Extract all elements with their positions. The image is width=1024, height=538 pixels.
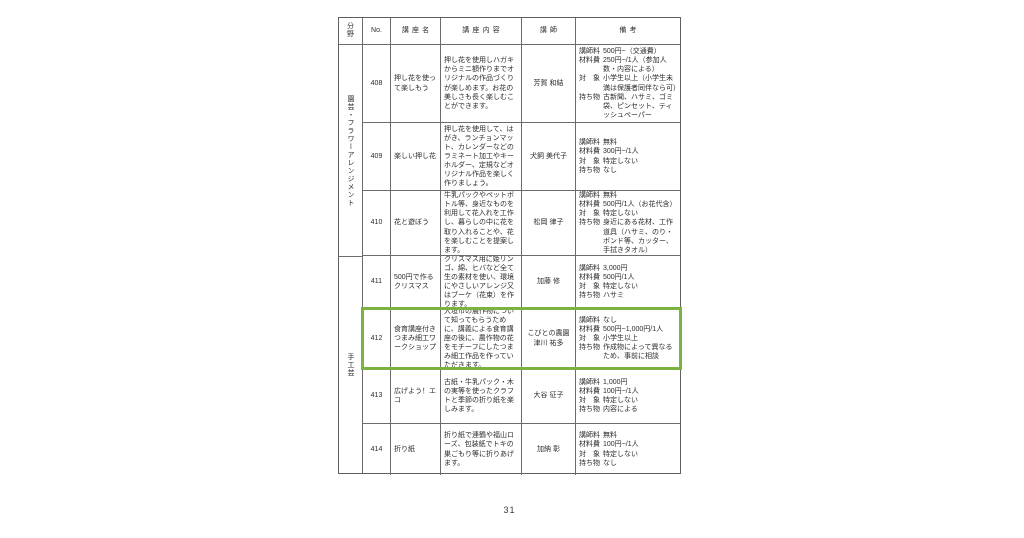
remark-value: 特定しない bbox=[603, 282, 677, 291]
remark-value: 特定しない bbox=[603, 396, 677, 405]
header-no: No. bbox=[363, 18, 391, 44]
remark-label: 持ち物 bbox=[579, 166, 603, 175]
remark-value: 特定しない bbox=[603, 209, 677, 218]
remark-value: 特定しない bbox=[603, 450, 677, 459]
remark-label: 材料費 bbox=[579, 56, 603, 74]
header-course-content: 講座内容 bbox=[441, 18, 522, 44]
remark-value: 特定しない bbox=[603, 157, 677, 166]
remark-label: 持ち物 bbox=[579, 405, 603, 414]
remark-label: 講師料 bbox=[579, 47, 603, 56]
course-no: 408 bbox=[363, 45, 391, 122]
field-group-gardening: 園芸・フラワーアレンジメント bbox=[339, 45, 362, 256]
remark-label: 対 象 bbox=[579, 74, 603, 92]
table-row-411: 411 500円で作るクリスマス クリスマス用に姫リンゴ、綿、ヒバなど全て生の素… bbox=[363, 256, 680, 309]
course-instructor: こびとの農園 津川 祐多 bbox=[522, 309, 576, 368]
course-content: 古紙・牛乳パック・木の実等を使ったクラフトと季節の折り紙を楽しみます。 bbox=[441, 369, 522, 423]
remark-label: 持ち物 bbox=[579, 459, 603, 468]
course-remarks: 講師料3,000円 材料費500円/1人 対 象特定しない 持ち物ハサミ bbox=[576, 256, 680, 308]
field-group-label: 園芸・フラワーアレンジメント bbox=[346, 95, 355, 207]
course-instructor: 犬飼 美代子 bbox=[522, 123, 576, 190]
remark-value: 500円/1人（お花代含） bbox=[603, 200, 677, 209]
remark-label: 材料費 bbox=[579, 387, 603, 396]
field-group-label: 手工芸 bbox=[346, 353, 355, 377]
remark-label: 講師料 bbox=[579, 316, 603, 325]
header-remarks: 備考 bbox=[576, 18, 680, 44]
course-no: 411 bbox=[363, 256, 391, 308]
remark-value: 無料 bbox=[603, 431, 677, 440]
course-no: 414 bbox=[363, 424, 391, 475]
field-column: 分野 園芸・フラワーアレンジメント 手工芸 bbox=[339, 18, 363, 473]
course-table: 分野 園芸・フラワーアレンジメント 手工芸 No. 講座名 講座内容 講師 備考… bbox=[338, 17, 681, 474]
remark-label: 材料費 bbox=[579, 325, 603, 334]
remark-value: なし bbox=[603, 459, 677, 468]
remark-label: 対 象 bbox=[579, 282, 603, 291]
course-no: 413 bbox=[363, 369, 391, 423]
course-name: 花と遊ぼう bbox=[391, 191, 441, 255]
course-instructor: 加藤 修 bbox=[522, 256, 576, 308]
table-row-414: 414 折り紙 折り紙で連鶴や福山ローズ、包装紙でトキの巣ごもり等に折りあげます… bbox=[363, 424, 680, 475]
course-name: 折り紙 bbox=[391, 424, 441, 475]
course-name: 食育講座付きつまみ細工ワークショップ bbox=[391, 309, 441, 368]
course-no: 410 bbox=[363, 191, 391, 255]
document-page: 分野 園芸・フラワーアレンジメント 手工芸 No. 講座名 講座内容 講師 備考… bbox=[0, 0, 1024, 538]
remark-label: 講師料 bbox=[579, 431, 603, 440]
remark-label: 講師料 bbox=[579, 191, 603, 200]
course-instructor: 大谷 征子 bbox=[522, 369, 576, 423]
remark-label: 持ち物 bbox=[579, 343, 603, 361]
remark-label: 講師料 bbox=[579, 378, 603, 387]
table-header-row: No. 講座名 講座内容 講師 備考 bbox=[363, 18, 680, 45]
remark-label: 対 象 bbox=[579, 334, 603, 343]
remark-label: 講師料 bbox=[579, 264, 603, 273]
table-row-409: 409 楽しい押し花 押し花を使用して、はがき、ランチョンマット、カレンダーなど… bbox=[363, 123, 680, 191]
course-content: 大垣市の農作物について知ってもらうために、講義による食育講座の後に、農作物の花を… bbox=[441, 309, 522, 368]
field-header-label: 分野 bbox=[347, 23, 354, 39]
header-course-name: 講座名 bbox=[391, 18, 441, 44]
remark-value: ハサミ bbox=[603, 291, 677, 300]
table-row-413: 413 広げよう！エコ 古紙・牛乳パック・木の実等を使ったクラフトと季節の折り紙… bbox=[363, 369, 680, 424]
course-remarks: 講師料無料 材料費300円~/1人 対 象特定しない 持ち物なし bbox=[576, 123, 680, 190]
remark-value: 250円~/1人（参加人数・内容による） bbox=[603, 56, 677, 74]
remark-value: 作成物によって異なるため、事前に相談 bbox=[603, 343, 677, 361]
remark-label: 対 象 bbox=[579, 396, 603, 405]
remark-label: 材料費 bbox=[579, 200, 603, 209]
remark-value: 無料 bbox=[603, 191, 677, 200]
table-row-412-highlighted: 412 食育講座付きつまみ細工ワークショップ 大垣市の農作物について知ってもらう… bbox=[363, 309, 680, 369]
header-instructor: 講師 bbox=[522, 18, 576, 44]
remark-label: 対 象 bbox=[579, 157, 603, 166]
remark-value: 3,000円 bbox=[603, 264, 677, 273]
remark-label: 対 象 bbox=[579, 450, 603, 459]
remark-value: 無料 bbox=[603, 138, 677, 147]
course-name: 500円で作るクリスマス bbox=[391, 256, 441, 308]
table-row-408: 408 押し花を使って楽しもう 押し花を使用しハガキからミニ額作りまでオリジナル… bbox=[363, 45, 680, 123]
remark-value: 身近にある花材、工作道具（ハサミ、のり・ボンド等、カッター、手拭きタオル） bbox=[603, 218, 677, 254]
remark-value: なし bbox=[603, 166, 677, 175]
remark-value: 古新聞、ハサミ、ゴミ袋、ピンセット、ティッシュペーパー bbox=[603, 93, 677, 120]
course-remarks: 講師料1,000円 材料費100円~/1人 対 象特定しない 持ち物内容による bbox=[576, 369, 680, 423]
course-name: 広げよう！エコ bbox=[391, 369, 441, 423]
course-name: 押し花を使って楽しもう bbox=[391, 45, 441, 122]
remark-value: 500円/1人 bbox=[603, 273, 677, 282]
remark-value: 100円~/1人 bbox=[603, 440, 677, 449]
remark-label: 材料費 bbox=[579, 147, 603, 156]
remark-label: 材料費 bbox=[579, 273, 603, 282]
remark-label: 材料費 bbox=[579, 440, 603, 449]
remark-label: 持ち物 bbox=[579, 291, 603, 300]
course-instructor: 加納 彰 bbox=[522, 424, 576, 475]
table-main: No. 講座名 講座内容 講師 備考 408 押し花を使って楽しもう 押し花を使… bbox=[363, 18, 680, 473]
remark-value: 500円~1,000円/1人 bbox=[603, 325, 677, 334]
course-content: 牛乳パックやペットボトル等、身近なものを利用して花入れを工作し、暮らしの中に花を… bbox=[441, 191, 522, 255]
course-name: 楽しい押し花 bbox=[391, 123, 441, 190]
course-instructor: 松岡 律子 bbox=[522, 191, 576, 255]
course-remarks: 講師料無料 材料費100円~/1人 対 象特定しない 持ち物なし bbox=[576, 424, 680, 475]
course-content: 押し花を使用しハガキからミニ額作りまでオリジナルの作品づくりが楽しめます。お花の… bbox=[441, 45, 522, 122]
remark-value: なし bbox=[603, 316, 677, 325]
remark-value: 小学生以上 bbox=[603, 334, 677, 343]
remark-label: 講師料 bbox=[579, 138, 603, 147]
table-row-410: 410 花と遊ぼう 牛乳パックやペットボトル等、身近なものを利用して花入れを工作… bbox=[363, 191, 680, 256]
field-group-handicraft: 手工芸 bbox=[339, 256, 362, 473]
remark-value: 1,000円 bbox=[603, 378, 677, 387]
course-no: 412 bbox=[363, 309, 391, 368]
course-content: 押し花を使用して、はがき、ランチョンマット、カレンダーなどのラミネート加工やキー… bbox=[441, 123, 522, 190]
remark-value: 500円~（交通費） bbox=[603, 47, 677, 56]
course-remarks: 講師料500円~（交通費） 材料費250円~/1人（参加人数・内容による） 対 … bbox=[576, 45, 680, 122]
course-content: 折り紙で連鶴や福山ローズ、包装紙でトキの巣ごもり等に折りあげます。 bbox=[441, 424, 522, 475]
remark-label: 対 象 bbox=[579, 209, 603, 218]
course-no: 409 bbox=[363, 123, 391, 190]
remark-value: 小学生以上（小学生未満は保護者同伴なら可） bbox=[603, 74, 677, 92]
field-header-cell: 分野 bbox=[339, 18, 362, 45]
remark-value: 300円~/1人 bbox=[603, 147, 677, 156]
course-remarks: 講師料無料 材料費500円/1人（お花代含） 対 象特定しない 持ち物身近にある… bbox=[576, 191, 680, 255]
remark-value: 100円~/1人 bbox=[603, 387, 677, 396]
remark-label: 持ち物 bbox=[579, 218, 603, 254]
course-remarks: 講師料なし 材料費500円~1,000円/1人 対 象小学生以上 持ち物作成物に… bbox=[576, 309, 680, 368]
page-number: 31 bbox=[338, 505, 681, 515]
remark-label: 持ち物 bbox=[579, 93, 603, 120]
course-instructor: 芳賀 和結 bbox=[522, 45, 576, 122]
course-content: クリスマス用に姫リンゴ、綿、ヒバなど全て生の素材を使い、環境にやさしいアレンジ又… bbox=[441, 256, 522, 308]
remark-value: 内容による bbox=[603, 405, 677, 414]
